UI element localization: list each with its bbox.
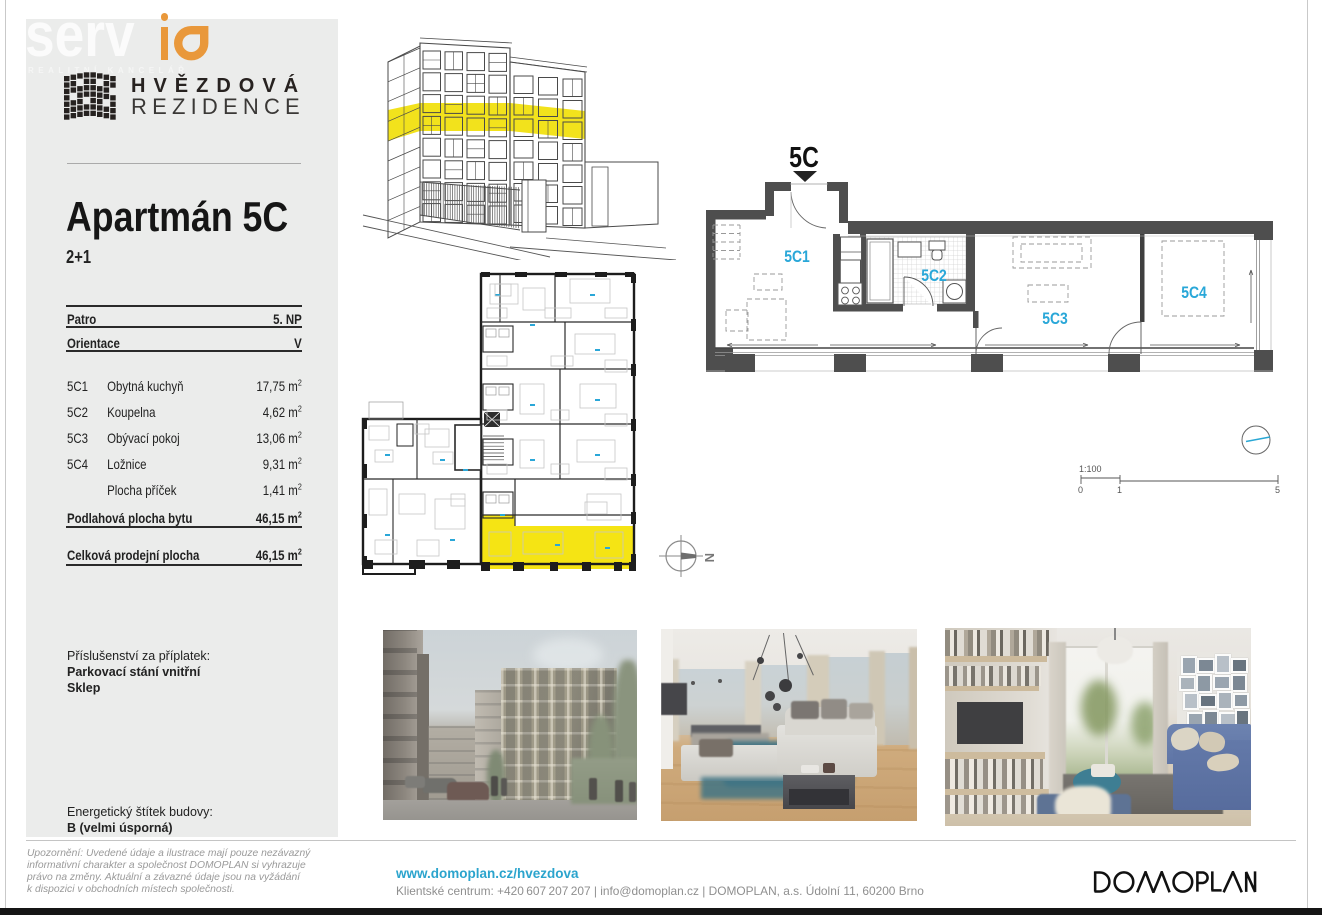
svg-text:5C1: 5C1 <box>784 248 810 267</box>
svg-text:N: N <box>702 553 717 562</box>
svg-text:5C3: 5C3 <box>1042 310 1068 329</box>
svg-text:5: 5 <box>1275 485 1280 495</box>
svg-text:0: 0 <box>1078 485 1083 495</box>
svg-text:1: 1 <box>1117 485 1122 495</box>
svg-text:5C2: 5C2 <box>921 267 947 286</box>
svg-text:5C: 5C <box>789 140 819 173</box>
svg-text:1:100: 1:100 <box>1079 464 1102 474</box>
svg-text:5C4: 5C4 <box>1181 284 1207 303</box>
